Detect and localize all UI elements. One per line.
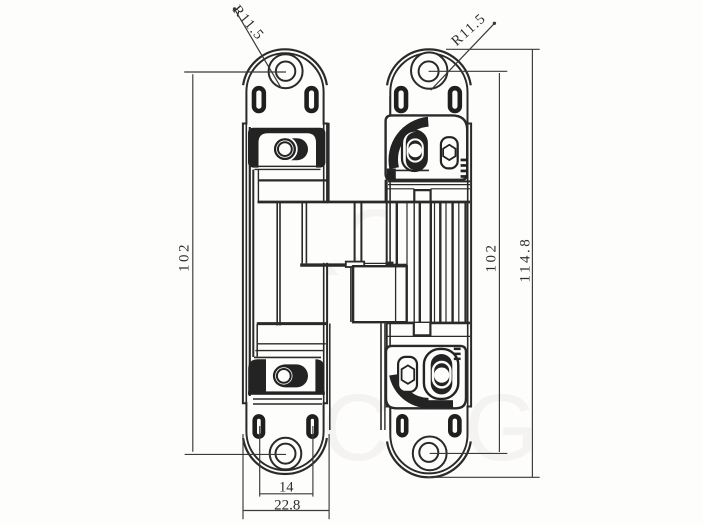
svg-text:114.8: 114.8 [518,237,534,283]
svg-text:14: 14 [279,480,294,496]
svg-text:22.8: 22.8 [274,498,300,514]
svg-text:102: 102 [483,243,499,273]
svg-text:102: 102 [177,242,193,272]
